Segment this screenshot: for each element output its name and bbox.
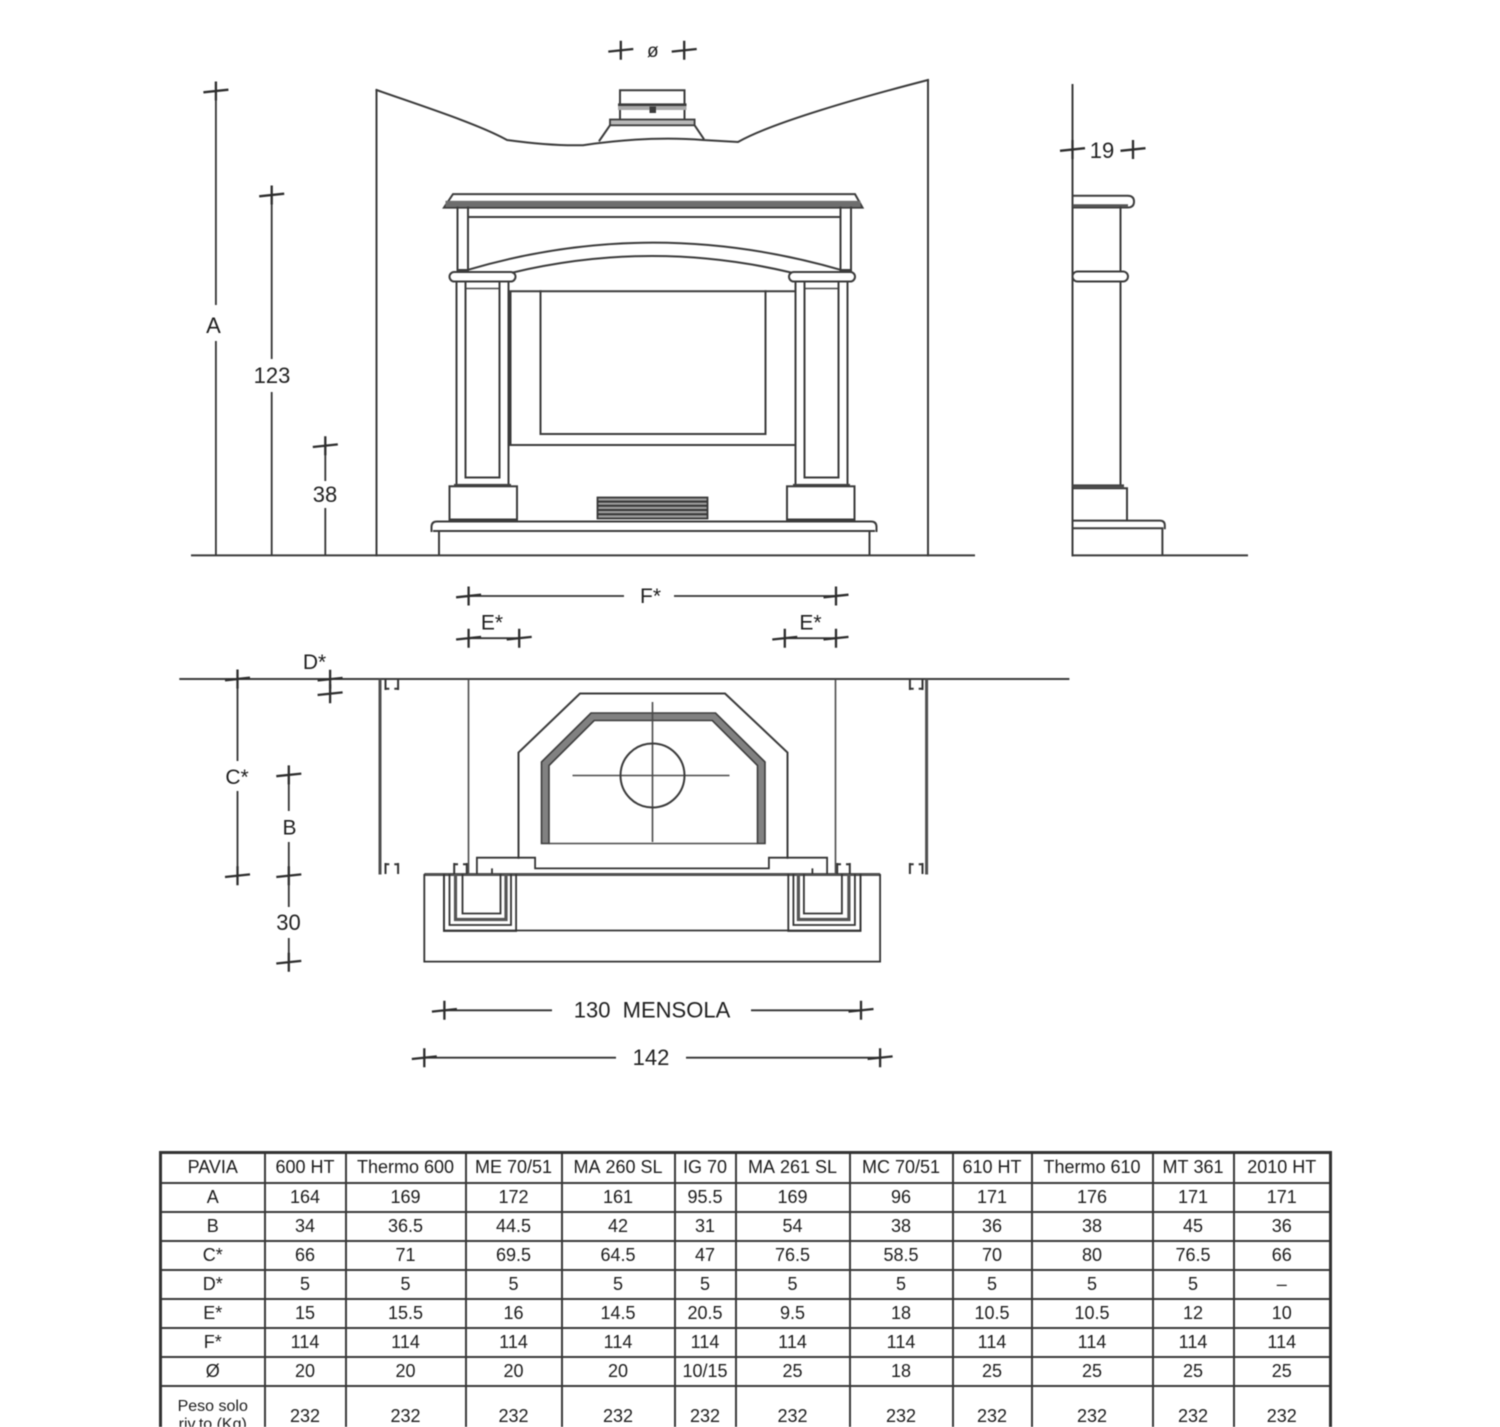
svg-text:A: A <box>206 313 221 338</box>
svg-text:38: 38 <box>313 482 337 507</box>
svg-text:D*: D* <box>303 651 326 674</box>
svg-text:19: 19 <box>1090 138 1114 163</box>
svg-text:30: 30 <box>276 910 300 935</box>
svg-text:B: B <box>282 817 296 840</box>
svg-text:130 MENSOLA: 130 MENSOLA <box>574 998 731 1023</box>
svg-text:E*: E* <box>799 612 821 635</box>
svg-text:123: 123 <box>254 363 291 388</box>
svg-text:E*: E* <box>481 612 503 635</box>
svg-text:142: 142 <box>633 1045 670 1070</box>
svg-text:ø: ø <box>647 41 659 62</box>
svg-text:C*: C* <box>225 766 248 789</box>
svg-text:F*: F* <box>640 585 661 608</box>
